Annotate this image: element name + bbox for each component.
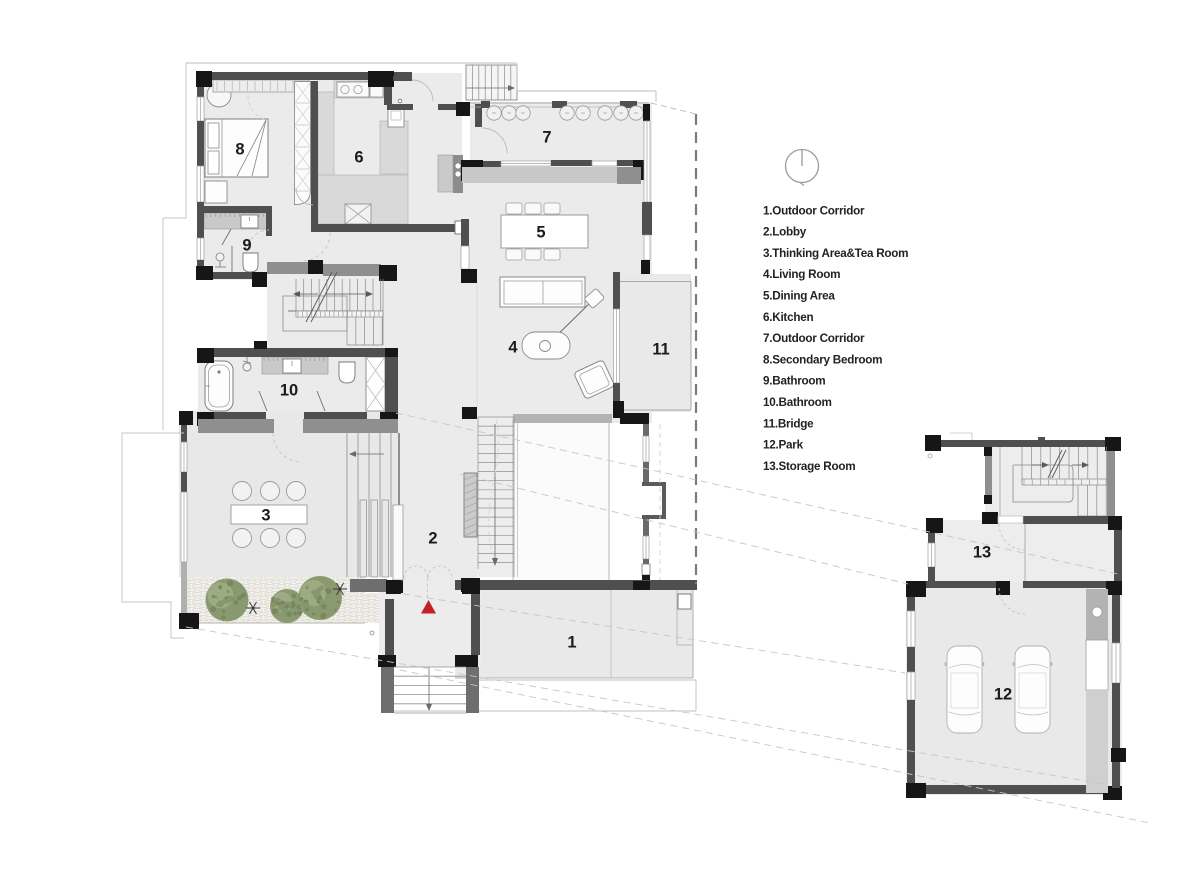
svg-text:7: 7 xyxy=(542,129,551,147)
svg-text:1: 1 xyxy=(567,634,576,652)
svg-text:13: 13 xyxy=(973,544,991,562)
svg-text:8.Secondary Bedroom: 8.Secondary Bedroom xyxy=(763,353,882,366)
svg-text:9: 9 xyxy=(242,237,251,255)
svg-text:10: 10 xyxy=(280,382,298,400)
svg-text:4: 4 xyxy=(508,339,518,357)
svg-text:6.Kitchen: 6.Kitchen xyxy=(763,311,813,324)
svg-text:10.Bathroom: 10.Bathroom xyxy=(763,396,832,409)
svg-text:7.Outdoor Corridor: 7.Outdoor Corridor xyxy=(763,332,865,345)
svg-text:13.Storage Room: 13.Storage Room xyxy=(763,460,855,473)
svg-text:11.Bridge: 11.Bridge xyxy=(763,417,814,430)
svg-text:11: 11 xyxy=(652,341,669,359)
svg-text:5.Dining Area: 5.Dining Area xyxy=(763,290,835,303)
svg-text:9.Bathroom: 9.Bathroom xyxy=(763,375,825,388)
svg-text:3.Thinking Area&Tea Room: 3.Thinking Area&Tea Room xyxy=(763,247,908,260)
svg-text:12.Park: 12.Park xyxy=(763,439,804,452)
svg-text:12: 12 xyxy=(994,686,1012,704)
svg-text:2: 2 xyxy=(428,530,437,548)
svg-text:5: 5 xyxy=(536,224,545,242)
svg-text:2.Lobby: 2.Lobby xyxy=(763,226,807,239)
svg-text:8: 8 xyxy=(235,141,244,159)
svg-text:3: 3 xyxy=(261,507,270,525)
svg-text:4.Living Room: 4.Living Room xyxy=(763,268,840,281)
svg-text:6: 6 xyxy=(354,149,363,167)
svg-text:1.Outdoor Corridor: 1.Outdoor Corridor xyxy=(763,204,865,217)
